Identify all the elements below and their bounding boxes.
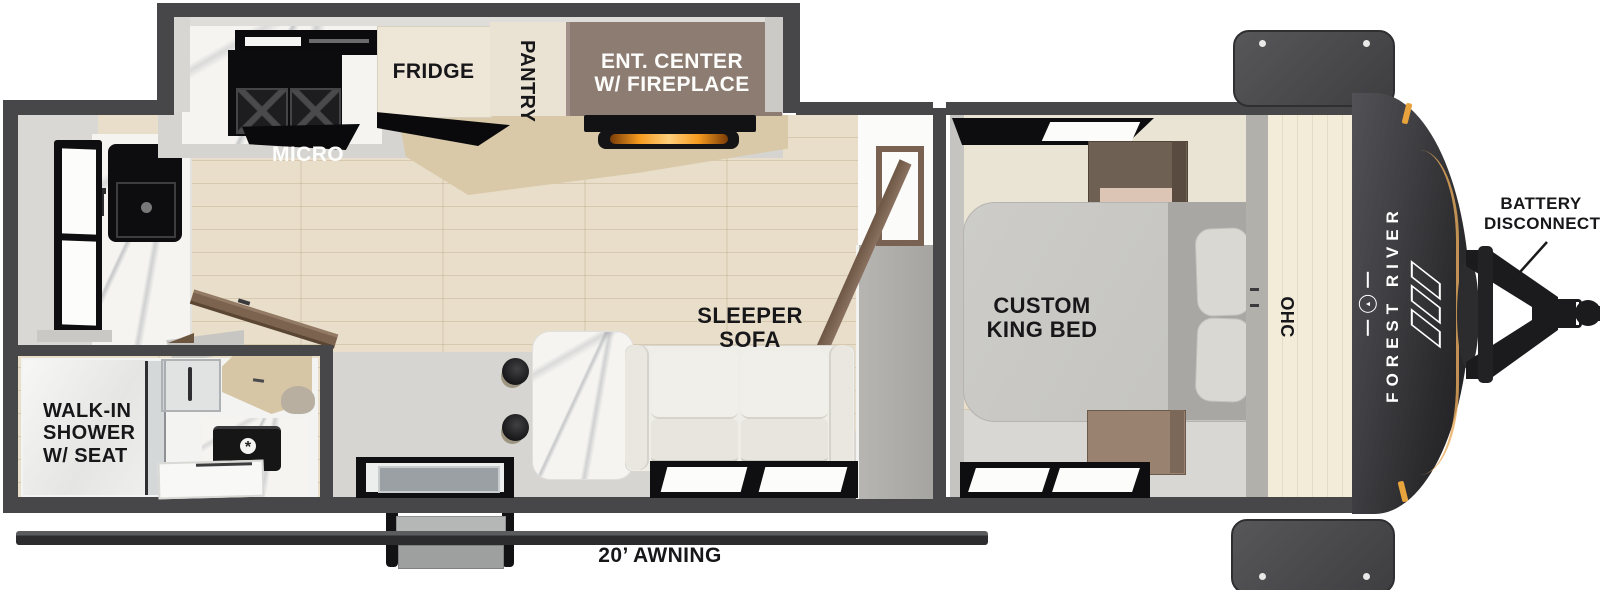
dinette-stool-top	[502, 358, 529, 385]
sofa-armrest-right	[829, 345, 853, 470]
label-awning: 20’ AWNING	[575, 544, 745, 567]
interior-wall-face	[856, 245, 933, 499]
wardrobe-handle-bottom	[1250, 304, 1259, 307]
brand-emblem-row: ▲	[1359, 272, 1377, 336]
brand-block: ▲ FOREST RIVER	[1340, 98, 1460, 510]
storage-screw-bl	[1259, 573, 1266, 580]
slide-wall-left	[157, 3, 174, 115]
slide-wall-right	[783, 3, 800, 113]
awning-bar	[16, 531, 988, 545]
label-custom-king-bed: CUSTOM KING BED	[952, 294, 1132, 342]
label-ohc: OHC	[1274, 292, 1296, 342]
kitchen-sink-drain	[141, 202, 152, 213]
label-sleeper-sofa: SLEEPER SOFA	[660, 304, 840, 352]
forest-river-logo-icon: ▲	[1359, 295, 1377, 313]
bedroom-window-pane-right	[1052, 468, 1140, 492]
bedroom-divider-wall	[933, 108, 946, 513]
slide-wall-top	[157, 3, 800, 17]
wardrobe-handle-top	[1250, 288, 1259, 291]
dinette-stool-bottom	[502, 414, 529, 441]
sofa-window-pane-right	[759, 467, 848, 492]
sofa-seat-cushion-left	[651, 419, 738, 463]
brand-stripes	[1411, 272, 1441, 337]
dinette-table	[532, 331, 634, 480]
bed-pillow-top	[1194, 227, 1251, 317]
rear-window-pane-top	[62, 148, 96, 234]
bed-pillow-bottom	[1195, 317, 1252, 403]
label-battery-disconnect: BATTERY DISCONNECT	[1484, 194, 1598, 234]
sofa-back-cushion-left	[651, 351, 738, 419]
bedroom-skylight-pane	[1042, 122, 1140, 141]
exterior-wall-bottom-bedroom	[946, 497, 1358, 513]
brand-dash-left	[1367, 320, 1369, 336]
front-storage-bottom	[1231, 519, 1395, 590]
entry-step-lower	[398, 545, 504, 569]
bedroom-dresser-side	[1170, 410, 1184, 473]
label-micro: MICRO	[250, 143, 366, 166]
exterior-wall-top-mid	[796, 102, 933, 115]
entry-step-well	[378, 466, 500, 493]
bathroom-wall-right	[320, 345, 333, 505]
range-hood-vent	[245, 37, 301, 46]
shower-door-handle	[188, 367, 192, 401]
label-pantry: PANTRY	[514, 40, 538, 100]
brand-name: FOREST RIVER	[1383, 205, 1403, 403]
label-ent-center: ENT. CENTER W/ FIREPLACE	[566, 50, 778, 96]
exterior-wall-rear	[3, 100, 18, 513]
sofa-seat-cushion-right	[741, 419, 828, 463]
brand-dash-right	[1367, 272, 1369, 288]
rear-window-pane-bottom	[62, 240, 96, 325]
brand-rotated: ▲ FOREST RIVER	[1359, 205, 1441, 403]
sofa-window-pane-left	[661, 467, 748, 492]
bedroom-wardrobe-side	[1172, 141, 1186, 209]
fireplace-flame-glow	[610, 134, 728, 144]
range-hood-slit	[309, 39, 369, 43]
bath-sink-drain-icon: *	[240, 438, 256, 454]
bathroom-wall-top	[10, 345, 333, 356]
sofa-back-cushion-right	[741, 351, 828, 419]
toilet	[281, 386, 315, 414]
cabinet-face-strip	[37, 330, 112, 342]
bedroom-window-pane-left	[968, 468, 1050, 492]
sofa-armrest-left	[625, 345, 649, 470]
slide-inner-left-face	[174, 16, 190, 112]
label-fridge: FRIDGE	[377, 60, 490, 83]
storage-screw-br	[1363, 573, 1370, 580]
label-walk-in-shower: WALK-IN SHOWER W/ SEAT	[43, 400, 165, 467]
exterior-wall-top-rear	[3, 100, 157, 115]
exterior-wall-bottom-main	[3, 497, 933, 513]
storage-screw-tr	[1363, 40, 1370, 47]
storage-screw-tl	[1259, 40, 1266, 47]
floorplan-canvas: *	[0, 0, 1600, 590]
